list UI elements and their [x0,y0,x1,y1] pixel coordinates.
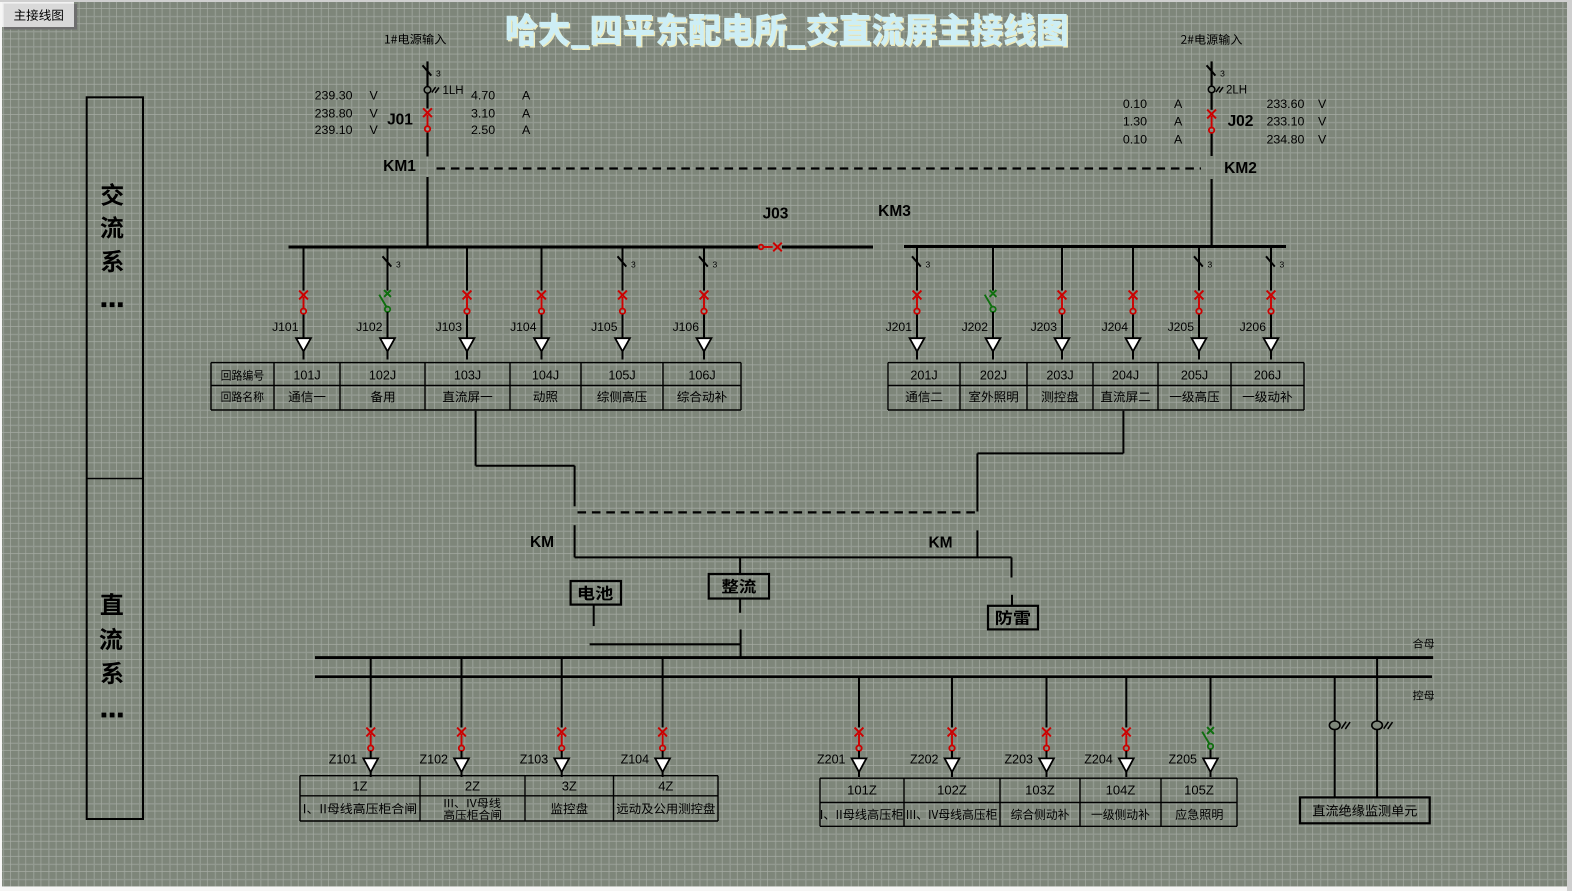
svg-text:Z205: Z205 [1169,753,1198,767]
svg-text:Z203: Z203 [1005,753,1034,767]
svg-text:3: 3 [396,259,401,269]
svg-text:203J: 203J [1046,369,1073,383]
svg-text:238.80: 238.80 [315,107,353,121]
svg-text:3: 3 [1280,259,1285,269]
svg-text:J203: J203 [1031,320,1058,334]
svg-text:V: V [1318,97,1327,111]
svg-text:J02: J02 [1228,113,1254,130]
svg-text:234.80: 234.80 [1267,133,1305,147]
svg-text:1Z: 1Z [352,778,367,793]
svg-text:A: A [522,89,531,103]
svg-text:233.60: 233.60 [1267,97,1305,111]
svg-text:Z202: Z202 [910,753,939,767]
svg-text:101J: 101J [293,369,320,383]
svg-text:Z204: Z204 [1084,753,1113,767]
svg-text:Z103: Z103 [520,753,549,767]
svg-text:3: 3 [631,259,636,269]
svg-text:102Z: 102Z [937,783,967,798]
svg-text:KM1: KM1 [383,158,416,175]
svg-text:4.70: 4.70 [471,89,495,103]
svg-text:KM3: KM3 [878,203,911,220]
svg-text:V: V [370,89,379,103]
svg-text:3: 3 [713,259,718,269]
svg-text:104J: 104J [532,369,559,383]
svg-text:J206: J206 [1240,320,1267,334]
svg-text:201J: 201J [910,369,937,383]
svg-text:V: V [1318,114,1327,128]
svg-text:J106: J106 [673,320,700,334]
svg-text:3: 3 [1208,259,1213,269]
svg-text:1LH: 1LH [443,85,464,97]
svg-text:A: A [1174,97,1183,111]
svg-text:0.10: 0.10 [1123,97,1147,111]
svg-text:V: V [370,123,379,137]
svg-text:205J: 205J [1181,369,1208,383]
svg-text:104Z: 104Z [1106,783,1136,798]
svg-text:106J: 106J [688,369,715,383]
svg-text:3: 3 [926,259,931,269]
svg-text:J204: J204 [1102,320,1129,334]
svg-text:KM: KM [530,534,554,551]
svg-text:103Z: 103Z [1025,783,1055,798]
svg-text:A: A [1174,114,1183,128]
svg-text:J03: J03 [763,206,789,223]
svg-text:J102: J102 [356,320,383,334]
svg-text:A: A [522,107,531,121]
svg-text:202J: 202J [980,369,1007,383]
svg-text:103J: 103J [454,369,481,383]
svg-text:Z201: Z201 [817,753,846,767]
svg-text:V: V [370,107,379,121]
svg-text:206J: 206J [1254,369,1281,383]
svg-text:J103: J103 [436,320,463,334]
svg-text:101Z: 101Z [847,783,877,798]
svg-text:3: 3 [1220,68,1225,78]
svg-text:3: 3 [436,68,441,78]
svg-text:1.30: 1.30 [1123,114,1147,128]
svg-text:4Z: 4Z [658,778,673,793]
svg-text:J205: J205 [1168,320,1195,334]
svg-text:2LH: 2LH [1226,84,1247,96]
svg-text:A: A [522,123,531,137]
svg-text:3Z: 3Z [562,778,577,793]
svg-text:J101: J101 [272,320,299,334]
svg-text:102J: 102J [369,369,396,383]
svg-text:233.10: 233.10 [1267,114,1305,128]
svg-text:0.10: 0.10 [1123,133,1147,147]
svg-text:J202: J202 [962,320,989,334]
svg-text:J01: J01 [387,112,413,129]
svg-text:105Z: 105Z [1184,783,1214,798]
svg-text:3.10: 3.10 [471,107,495,121]
svg-text:J201: J201 [886,320,913,334]
svg-text:J104: J104 [510,320,537,334]
svg-text:2Z: 2Z [465,778,480,793]
svg-text:239.30: 239.30 [315,89,353,103]
svg-text:Z104: Z104 [621,753,650,767]
svg-text:KM: KM [928,535,952,552]
svg-text:Z101: Z101 [329,753,358,767]
svg-text:239.10: 239.10 [315,123,353,137]
svg-text:J105: J105 [591,320,618,334]
svg-text:204J: 204J [1112,369,1139,383]
svg-text:Z102: Z102 [420,753,449,767]
svg-text:A: A [1174,133,1183,147]
svg-text:V: V [1318,133,1327,147]
svg-text:2.50: 2.50 [471,123,495,137]
svg-text:KM2: KM2 [1224,160,1257,177]
svg-text:105J: 105J [608,369,635,383]
